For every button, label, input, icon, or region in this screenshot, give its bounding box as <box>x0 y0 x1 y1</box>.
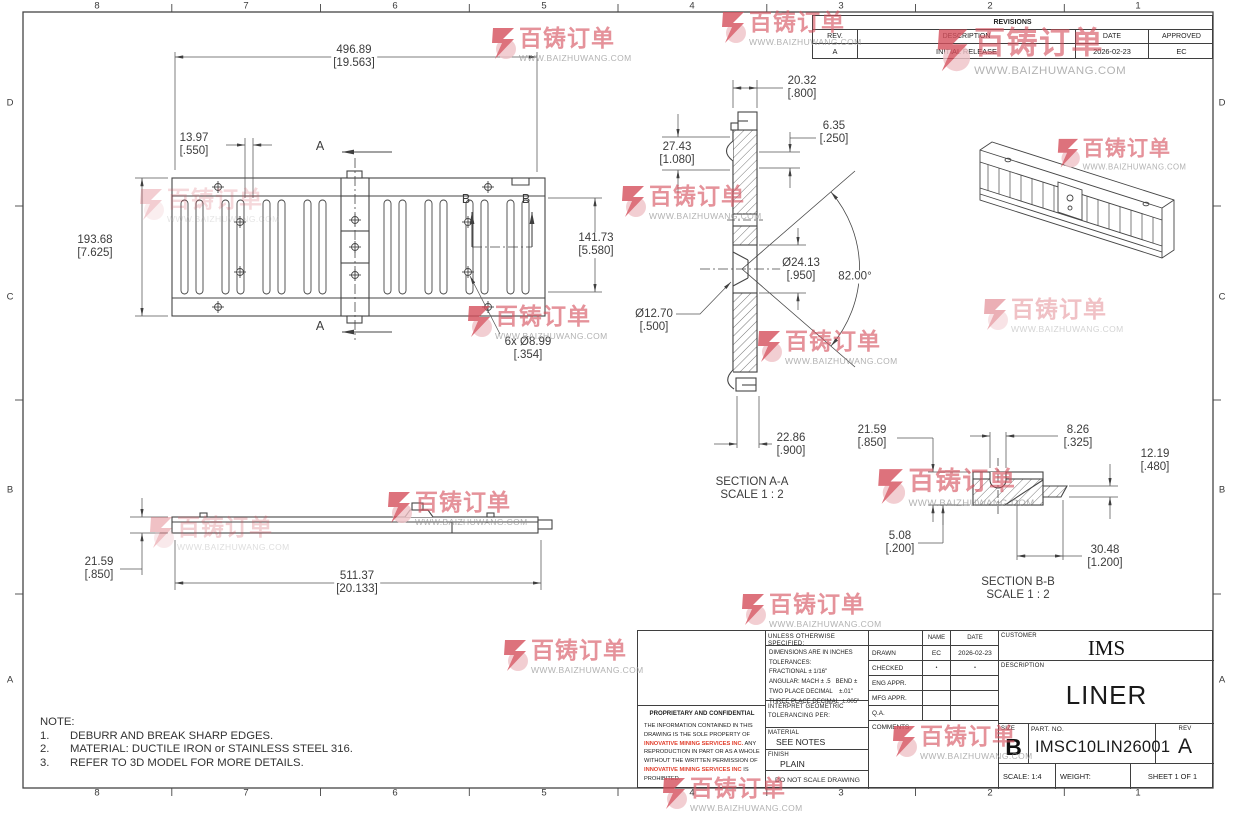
section-aa-caption: SECTION A-ASCALE 1 : 2 <box>716 476 789 502</box>
notes-block: NOTE: 1.DEBURR AND BREAK SHARP EDGES. 2.… <box>40 716 353 770</box>
zone-col-label: 1 <box>1135 1 1140 12</box>
part-no-value: IMSC10LIN26001 <box>1035 738 1170 757</box>
dim-bb-length: 30.48[1.200] <box>1085 544 1124 570</box>
dim-inner-height: 141.73[5.580] <box>576 232 615 258</box>
dim-bb-right: 12.19[.480] <box>1139 448 1172 474</box>
title-block: PROPRIETARY AND CONFIDENTIAL THE INFORMA… <box>637 630 1213 788</box>
revisions-header-description: DESCRIPTION <box>858 30 1076 43</box>
dim-holes: 6x Ø8.99[.354] <box>503 336 554 362</box>
zone-col-label: 4 <box>689 1 694 12</box>
approval-row-qa: Q.A. <box>869 706 999 721</box>
side-view-dimensions <box>120 498 541 590</box>
material-cell: MATERIAL SEE NOTES <box>766 728 869 750</box>
revision-date: 2026-02-23 <box>1076 44 1149 59</box>
zone-col-label: 7 <box>243 788 248 799</box>
zone-row-label: C <box>1219 292 1226 303</box>
dim-overall-height: 193.68[7.625] <box>75 234 114 260</box>
zone-row-label: C <box>7 292 14 303</box>
note-item: 1.DEBURR AND BREAK SHARP EDGES. <box>40 730 353 744</box>
zone-col-label: 8 <box>94 788 99 799</box>
description-cell: DESCRIPTION LINER <box>999 661 1214 724</box>
dim-rib-width: 13.97[.550] <box>178 132 211 158</box>
approval-row-mfg: MFG APPR. <box>869 691 999 706</box>
dim-aa-width: 20.32[.800] <box>786 75 819 101</box>
size-cell: SIZE B <box>999 724 1029 763</box>
revisions-table: REVISIONS REV. DESCRIPTION DATE APPROVED… <box>812 15 1213 59</box>
dim-side-length: 511.37[20.133] <box>334 570 380 596</box>
revisions-header-rev: REV. <box>813 30 858 43</box>
finish-cell: FINISH PLAIN <box>766 750 869 771</box>
zone-col-label: 2 <box>987 1 992 12</box>
revision-row: A INITIAL RELEASE 2026-02-23 EC <box>813 44 1212 59</box>
do-not-scale-cell: DO NOT SCALE DRAWING <box>766 771 869 789</box>
scale-cell: SCALE: 1:4 <box>999 764 1056 789</box>
weight-cell: WEIGHT: <box>1056 764 1131 789</box>
size-value: B <box>999 734 1028 761</box>
revisions-header-approved: APPROVED <box>1149 30 1214 43</box>
zone-row-label: D <box>1219 98 1226 109</box>
dim-aa-hole: Ø24.13[.950] <box>780 257 822 283</box>
section-aa-view <box>700 112 860 391</box>
part-info: CUSTOMER IMS DESCRIPTION LINER SIZE B PA… <box>999 631 1214 789</box>
part-no-cell: PART. NO. IMSC10LIN26001 <box>1029 724 1156 763</box>
zone-col-label: 2 <box>987 788 992 799</box>
zone-col-label: 4 <box>689 788 694 799</box>
zone-col-label: 3 <box>838 1 843 12</box>
dim-overall-length: 496.89[19.563] <box>331 44 377 70</box>
tolerance-header-cell: UNLESS OTHERWISE SPECIFIED: <box>766 631 869 646</box>
dim-side-thickness: 21.59[.850] <box>83 556 116 582</box>
interpret-cell: INTERPRET GEOMETRIC TOLERANCING PER: <box>766 701 869 728</box>
rev-cell: REV A <box>1156 724 1214 763</box>
zone-row-label: A <box>1219 675 1225 686</box>
dim-bb-left: 21.59[.850] <box>856 424 889 450</box>
approvals-grid: NAME DATE DRAWN EC 2026-02-23 CHECKED • … <box>869 631 999 789</box>
section-bb-caption: SECTION B-BSCALE 1 : 2 <box>981 576 1054 602</box>
rev-value: A <box>1156 735 1214 759</box>
engineering-drawing-sheet: { "sheet": { "cols": ["8","7","6","5","4… <box>0 0 1237 800</box>
zone-row-label: A <box>7 675 13 686</box>
proprietary-title: PROPRIETARY AND CONFIDENTIAL <box>644 710 760 717</box>
notes-title: NOTE: <box>40 716 353 730</box>
zone-col-label: 5 <box>541 788 546 799</box>
zone-row-label: B <box>1219 485 1225 496</box>
dim-bb-slot: 8.26[.325] <box>1062 424 1095 450</box>
zone-row-label: D <box>7 98 14 109</box>
approval-row-checked: CHECKED • • <box>869 661 999 676</box>
revisions-title: REVISIONS <box>813 16 1212 30</box>
zone-col-label: 3 <box>838 788 843 799</box>
dim-aa-lip: 6.35[.250] <box>818 120 851 146</box>
revision-rev: A <box>813 44 858 59</box>
approval-row-eng: ENG APPR. <box>869 676 999 691</box>
customer-cell: CUSTOMER IMS <box>999 631 1214 661</box>
section-bb-view <box>973 458 1067 515</box>
finish-value: PLAIN <box>780 759 805 769</box>
iso-view <box>980 142 1174 258</box>
zone-col-label: 6 <box>392 788 397 799</box>
material-value: SEE NOTES <box>776 737 825 747</box>
tolerance-lines-cell: DIMENSIONS ARE IN INCHESTOLERANCES:FRACT… <box>766 646 869 701</box>
approval-row-drawn: DRAWN EC 2026-02-23 <box>869 646 999 661</box>
section-arrow-label-b: B <box>462 192 470 206</box>
proprietary-text: THE INFORMATION CONTAINED IN THIS DRAWIN… <box>644 722 760 784</box>
zone-col-label: 1 <box>1135 788 1140 799</box>
description-value: LINER <box>999 680 1214 711</box>
revision-description: INITIAL RELEASE <box>858 44 1076 59</box>
note-item: 3.REFER TO 3D MODEL FOR MORE DETAILS. <box>40 757 353 771</box>
revision-approved: EC <box>1149 44 1214 59</box>
date-header: DATE <box>951 635 999 641</box>
zone-row-label: B <box>7 485 13 496</box>
customer-value: IMS <box>999 636 1214 661</box>
section-arrow-label-a: A <box>316 319 324 333</box>
proprietary-cell: PROPRIETARY AND CONFIDENTIAL THE INFORMA… <box>638 706 766 789</box>
dim-aa-bottom: 22.86[.900] <box>775 432 808 458</box>
section-arrow-label-a: A <box>316 139 324 153</box>
side-view <box>172 503 552 533</box>
dim-aa-hole2: Ø12.70[.500] <box>633 308 675 334</box>
note-item: 2.MATERIAL: DUCTILE IRON or STAINLESS ST… <box>40 743 353 757</box>
revisions-header-date: DATE <box>1076 30 1149 43</box>
zone-col-label: 6 <box>392 1 397 12</box>
comments-cell: COMMENTS <box>869 721 999 789</box>
watermark-url-text: WWW.BAIZHUWANG.COM <box>690 803 803 813</box>
zone-col-label: 8 <box>94 1 99 12</box>
sheet-cell: SHEET 1 OF 1 <box>1131 764 1214 789</box>
name-header: NAME <box>923 635 950 641</box>
section-arrow-label-b: B <box>522 192 530 206</box>
dim-bb-step: 5.08[.200] <box>884 530 917 556</box>
dim-aa-top: 27.43[1.080] <box>657 141 696 167</box>
dim-aa-angle: 82.00° <box>836 271 873 284</box>
zone-col-label: 5 <box>541 1 546 12</box>
top-view <box>172 152 545 340</box>
zone-col-label: 7 <box>243 1 248 12</box>
